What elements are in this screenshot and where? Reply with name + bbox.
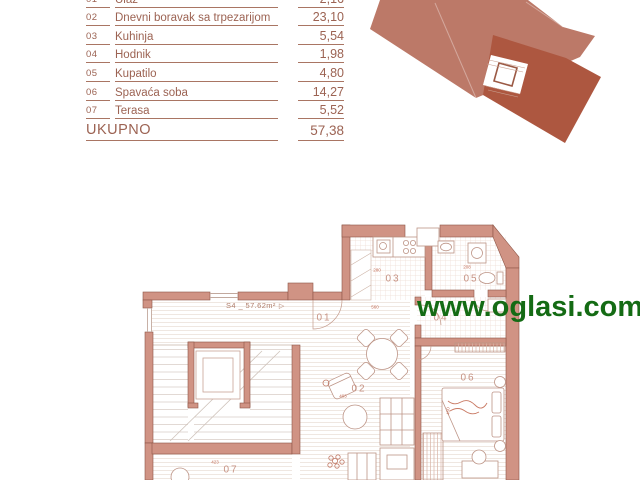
area-row: 01Ulaz2,16 (86, 0, 344, 8)
room-number: 01 (86, 0, 110, 8)
area-row: 07Terasa5,52 (86, 101, 344, 120)
room-number: 05 (86, 68, 110, 82)
room-name: Dnevni boravak sa trpezarijom (115, 12, 278, 26)
room-area: 1,98 (298, 47, 344, 63)
room-number: 04 (86, 49, 110, 63)
area-row: 02Dnevni boravak sa trpezarijom23,10 (86, 8, 344, 27)
room-name: Kuhinja (115, 31, 278, 45)
room-area: 14,27 (298, 85, 344, 101)
room-area: 5,52 (298, 103, 344, 119)
room-name: Terasa (115, 105, 278, 119)
watermark-text: www.oglasi.com (417, 293, 640, 322)
room-name: Kupatilo (115, 68, 278, 82)
room-number: 06 (86, 87, 110, 101)
room-name: Spavaća soba (115, 87, 278, 101)
site-plan (358, 0, 640, 150)
room-area: 5,54 (298, 29, 344, 45)
total-label: UKUPNO (86, 122, 278, 141)
area-row: 03Kuhinja5,54 (86, 26, 344, 45)
room-name: Hodnik (115, 49, 278, 63)
room-name: Ulaz (115, 0, 278, 8)
room-number: 07 (86, 105, 110, 119)
area-table: 01Ulaz2,1602Dnevni boravak sa trpezarijo… (86, 0, 344, 141)
area-row: 05Kupatilo4,80 (86, 63, 344, 82)
room-area: 4,80 (298, 66, 344, 82)
area-table-rows: 01Ulaz2,1602Dnevni boravak sa trpezarijo… (86, 0, 344, 119)
shaft (351, 250, 371, 300)
area-row: 04Hodnik1,98 (86, 45, 344, 64)
room-area: 2,16 (298, 0, 344, 8)
room-number: 02 (86, 12, 110, 26)
room-area: 23,10 (298, 10, 344, 26)
room-number: 03 (86, 31, 110, 45)
area-table-total-row: UKUPNO 57,38 (86, 119, 344, 141)
area-row: 06Spavaća soba14,27 (86, 82, 344, 101)
total-value: 57,38 (298, 123, 344, 141)
floor-plan (130, 215, 640, 480)
listing-image: 01Ulaz2,1602Dnevni boravak sa trpezarijo… (0, 0, 640, 480)
